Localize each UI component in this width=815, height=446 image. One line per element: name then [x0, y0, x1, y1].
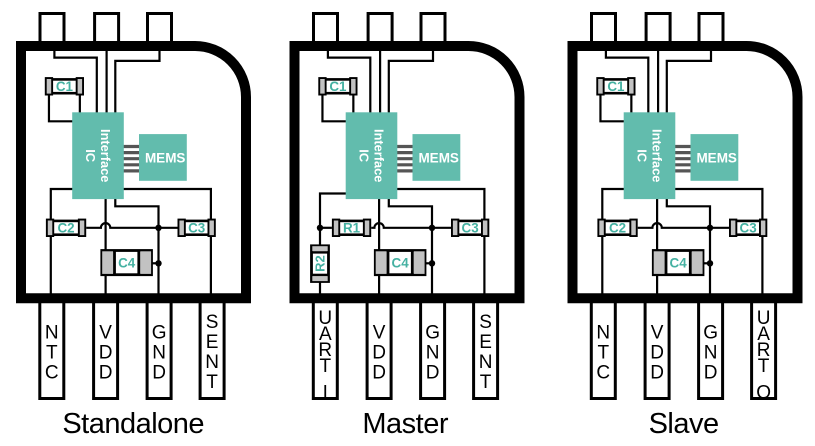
svg-text:Interface: Interface: [650, 129, 665, 182]
svg-text:D: D: [372, 363, 386, 384]
svg-text:S: S: [206, 312, 219, 333]
svg-text:IC: IC: [635, 149, 650, 162]
svg-text:G: G: [703, 322, 718, 343]
svg-text:D: D: [99, 363, 113, 384]
svg-text:C4: C4: [670, 255, 688, 270]
svg-text:N: N: [479, 352, 493, 373]
svg-text:S: S: [479, 312, 492, 333]
svg-text:R1: R1: [343, 221, 361, 236]
svg-text:E: E: [479, 332, 492, 353]
svg-text:Interface: Interface: [98, 129, 113, 182]
svg-text:C1: C1: [56, 79, 74, 94]
svg-text:C4: C4: [392, 255, 410, 270]
svg-text:N: N: [205, 352, 219, 373]
svg-text:V: V: [651, 322, 664, 343]
svg-text:Master: Master: [362, 408, 448, 440]
svg-text:N: N: [152, 343, 166, 364]
svg-text:C1: C1: [329, 79, 347, 94]
svg-text:T: T: [758, 356, 770, 377]
svg-text:MEMS: MEMS: [418, 150, 459, 165]
svg-text:C: C: [596, 363, 610, 384]
svg-text:G: G: [425, 322, 440, 343]
svg-text:N: N: [45, 322, 59, 343]
svg-text:D: D: [650, 363, 664, 384]
svg-text:R2: R2: [313, 255, 328, 272]
svg-text:IC: IC: [83, 149, 98, 162]
svg-text:D: D: [99, 343, 113, 364]
svg-text:N: N: [704, 343, 718, 364]
svg-text:D: D: [650, 343, 664, 364]
svg-text:C4: C4: [118, 255, 136, 270]
svg-text:Slave: Slave: [649, 408, 719, 440]
svg-text:C1: C1: [607, 79, 625, 94]
svg-text:MEMS: MEMS: [145, 150, 186, 165]
svg-text:C3: C3: [188, 221, 205, 236]
svg-text:N: N: [596, 322, 610, 343]
svg-text:IC: IC: [357, 149, 372, 162]
svg-text:C: C: [45, 363, 59, 384]
svg-text:V: V: [99, 322, 112, 343]
svg-text:C2: C2: [57, 221, 74, 236]
svg-text:T: T: [319, 356, 331, 377]
svg-text:T: T: [597, 343, 609, 364]
svg-text:G: G: [152, 322, 167, 343]
svg-text:T: T: [206, 372, 218, 393]
svg-text:T: T: [480, 372, 492, 393]
svg-text:C2: C2: [609, 221, 626, 236]
svg-text:T: T: [46, 343, 58, 364]
svg-text:MEMS: MEMS: [696, 150, 737, 165]
svg-text:Interface: Interface: [372, 129, 387, 182]
svg-text:D: D: [372, 343, 386, 364]
svg-text:V: V: [373, 322, 386, 343]
svg-text:D: D: [152, 363, 166, 384]
svg-text:E: E: [206, 332, 219, 353]
svg-text:D: D: [426, 363, 440, 384]
svg-text:N: N: [426, 343, 440, 364]
svg-text:Standalone: Standalone: [62, 408, 204, 440]
svg-text:C3: C3: [462, 221, 479, 236]
svg-text:D: D: [704, 363, 718, 384]
svg-text:O: O: [756, 382, 771, 403]
svg-text:I: I: [323, 382, 328, 403]
svg-text:C3: C3: [740, 221, 757, 236]
